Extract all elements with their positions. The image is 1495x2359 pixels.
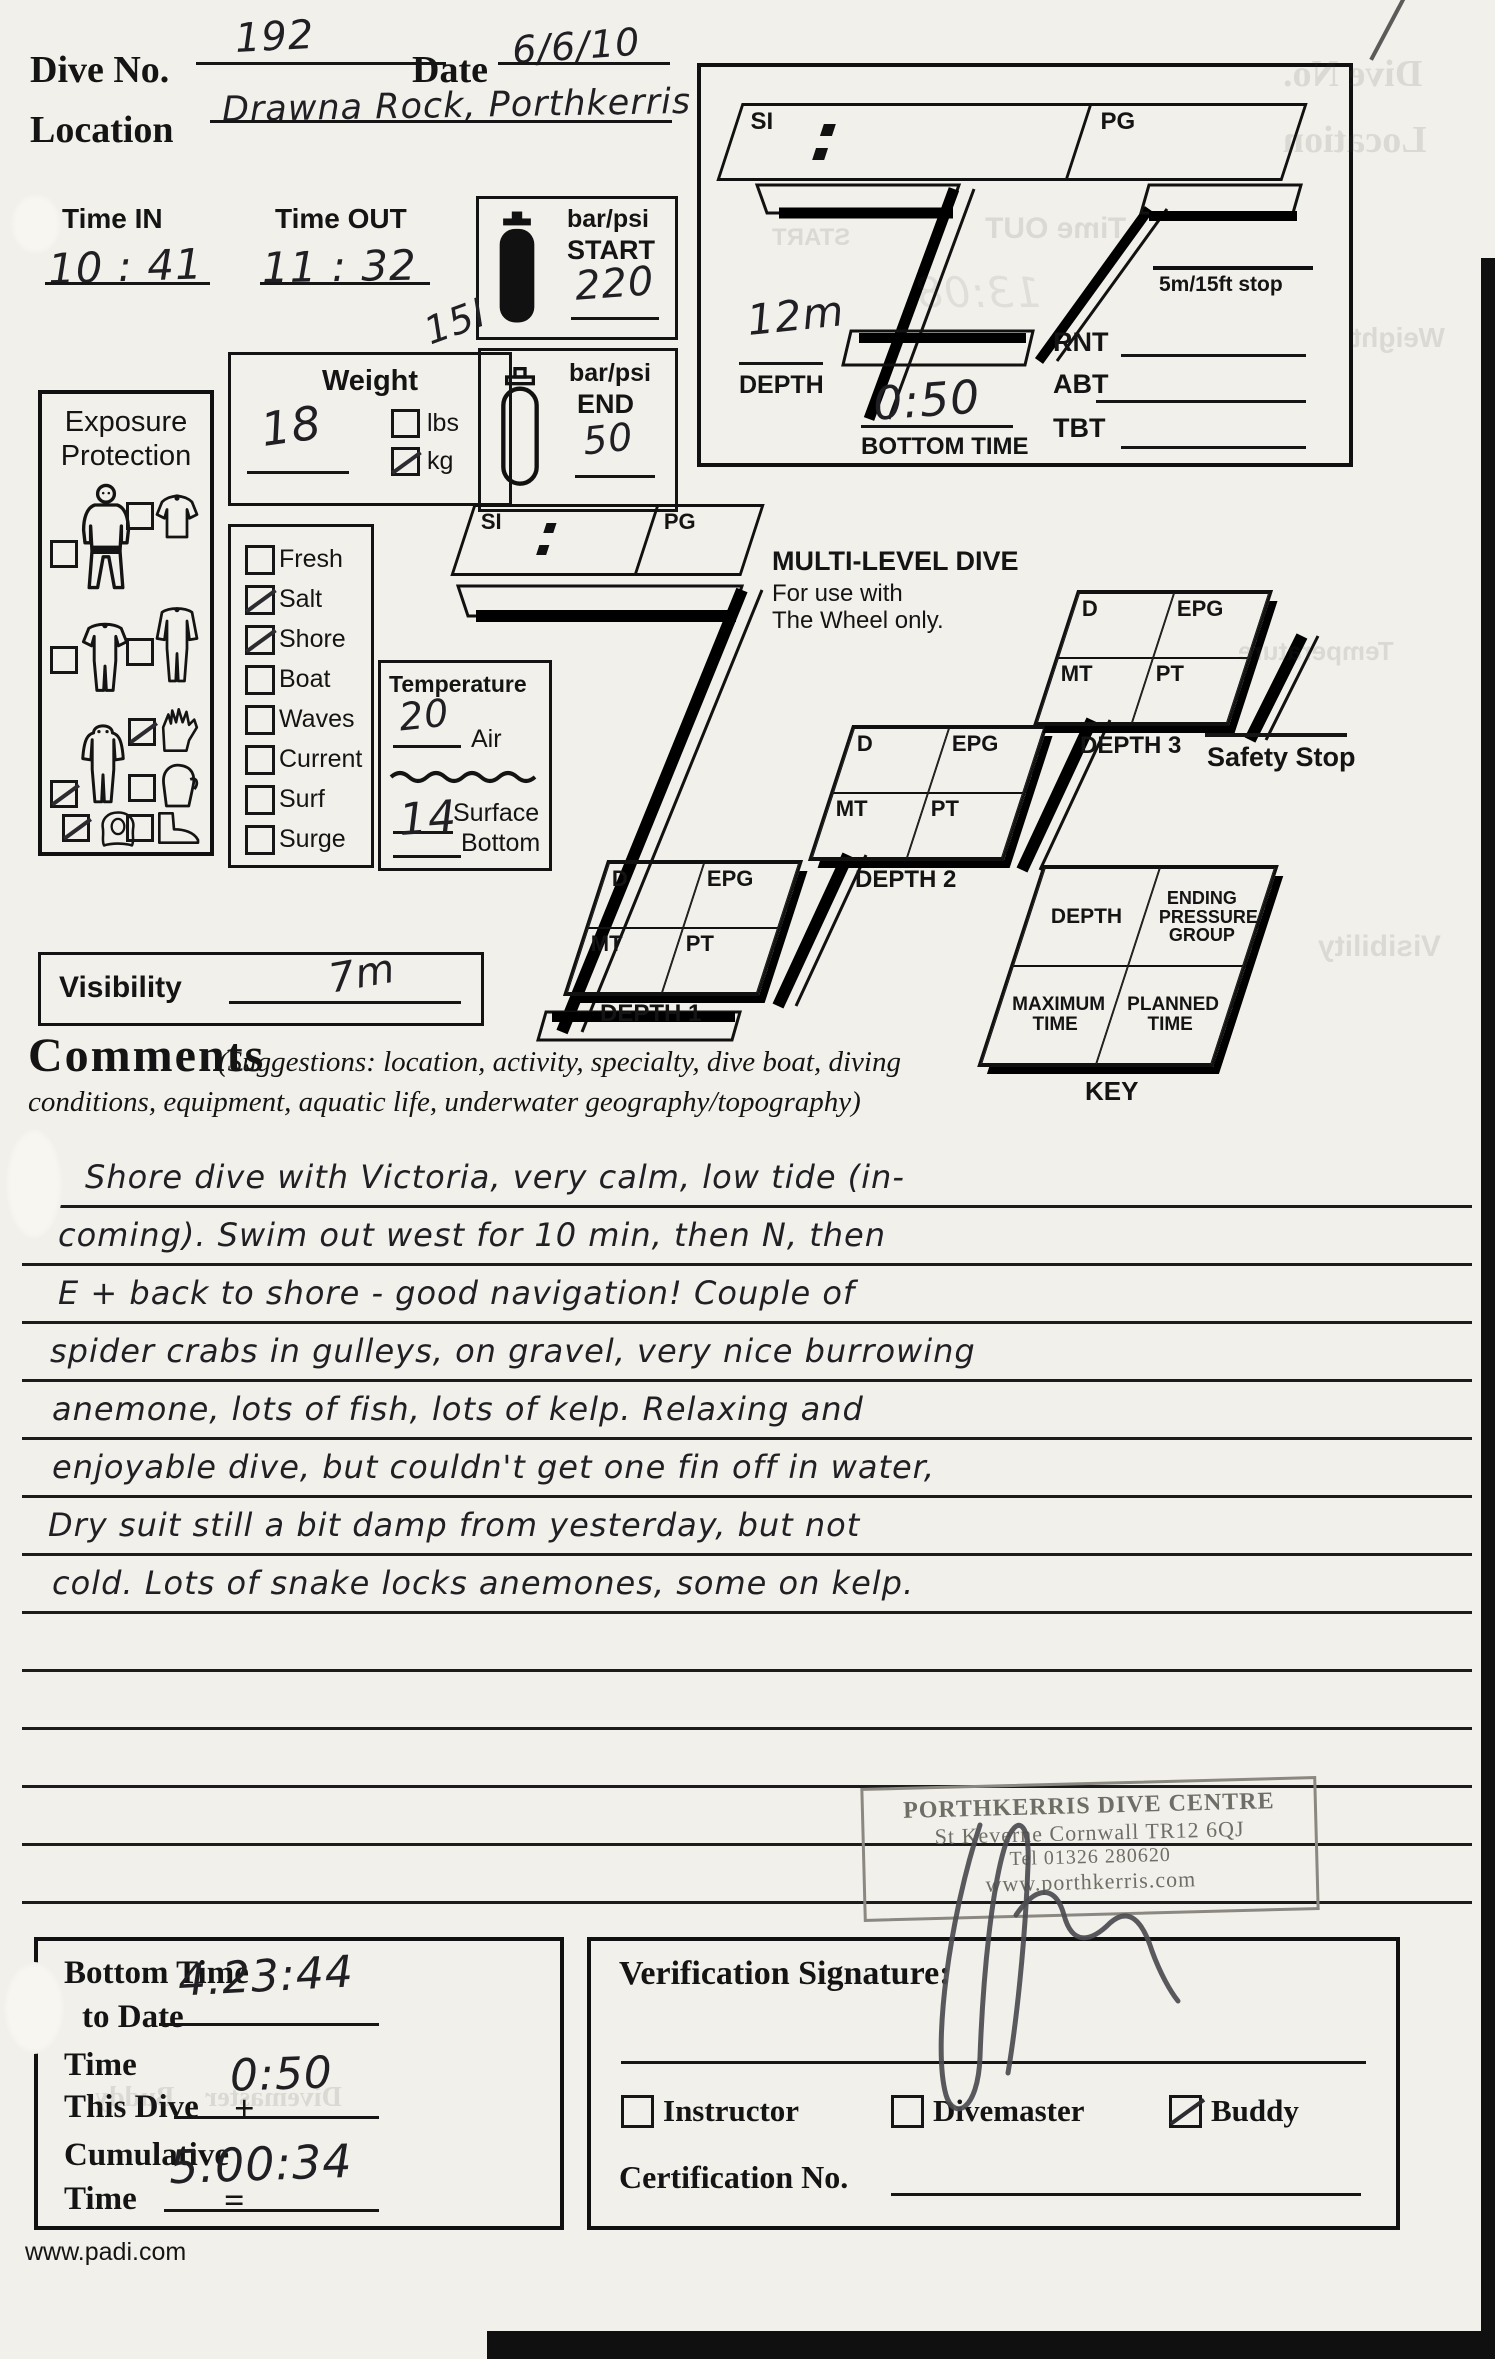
scan-edge-right — [1481, 258, 1495, 2359]
boat-label: Boat — [279, 665, 330, 694]
shore-label: Shore — [279, 625, 346, 654]
ghost-time-value: 13:08 — [915, 268, 1041, 317]
date-line — [498, 62, 670, 65]
comment-line: cold. Lots of snake locks anemones, some… — [52, 1564, 914, 1602]
salt-checkbox — [245, 585, 275, 615]
ghost-divemaster: Divemaster — [205, 2082, 342, 2114]
swimsuit-checkbox — [50, 540, 78, 568]
vest-icon — [152, 482, 202, 552]
dive-log-page: Dive No. 192 Date 6/6/10 Location Drawna… — [0, 0, 1495, 2359]
lbs-checkbox — [391, 409, 420, 438]
weight-line — [247, 471, 349, 474]
comments-suggestions-1: (Suggestions: location, activity, specia… — [218, 1046, 901, 1079]
scan-edge-bottom — [487, 2331, 1495, 2359]
comment-line: Dry suit still a bit damp from yesterday… — [48, 1506, 860, 1544]
depth1-cell-d: D — [612, 866, 628, 892]
safety-stop-label: Safety Stop — [1207, 742, 1356, 773]
fresh-checkbox — [245, 545, 275, 575]
lbs-label: lbs — [427, 409, 459, 438]
rnt-line — [1121, 354, 1306, 357]
surge-label: Surge — [279, 825, 346, 854]
time-this-dive-label-1: Time — [64, 2047, 137, 2084]
time-in-value: 10 : 41 — [47, 239, 203, 293]
bottom-time-line — [861, 425, 1013, 428]
fresh-label: Fresh — [279, 545, 343, 574]
visibility-label: Visibility — [59, 971, 182, 1005]
kg-checkbox — [391, 447, 420, 476]
weight-title: Weight — [231, 365, 509, 398]
abt-line — [1096, 400, 1306, 403]
depth3-cell-d: D — [1082, 596, 1098, 622]
visibility-line — [229, 1001, 461, 1004]
visibility-box: Visibility 7m — [38, 952, 484, 1026]
exposure-title-2: Protection — [42, 440, 210, 473]
abt-label: ABT — [1053, 369, 1109, 400]
ghost-dive-no: Dive No. — [1283, 52, 1422, 96]
instructor-label: Instructor — [663, 2093, 799, 2129]
jumpsuit-icon — [152, 590, 202, 702]
bottom-time-to-date-line — [159, 2023, 379, 2026]
instructor-checkbox — [621, 2095, 654, 2128]
comment-line: E + back to shore - good navigation! Cou… — [58, 1274, 855, 1312]
key-cell-epg: ENDING PRESSURE GROUP — [1158, 889, 1244, 945]
dive-profile-box: SI PG 5m/15ft stop 12m DEPTH 0:50 — [697, 63, 1353, 467]
ghost-start: START — [772, 224, 850, 252]
hole-punch-mark — [10, 193, 62, 255]
surf-checkbox — [245, 785, 275, 815]
cumulative-label-2: Time — [64, 2181, 137, 2218]
surf-label: Surf — [279, 785, 325, 814]
ghost-location: Location — [1283, 118, 1427, 162]
boat-checkbox — [245, 665, 275, 695]
safety-stop-line — [1205, 733, 1347, 737]
weight-value: 18 — [258, 395, 325, 457]
hooded-suit-checkbox — [50, 780, 78, 808]
bottom-time-to-date-label-2: to Date — [82, 1999, 184, 2036]
key-cell-depth: DEPTH — [1051, 905, 1122, 929]
padi-url: www.padi.com — [25, 2238, 186, 2267]
depth3-cell-mt: MT — [1061, 661, 1093, 687]
shorty-suit-icon — [78, 608, 132, 708]
ghost-buddy: Buddy — [95, 2082, 174, 2114]
depth2-cell-epg: EPG — [952, 731, 998, 757]
depth2-cell-pt: PT — [931, 796, 959, 822]
location-line — [210, 120, 672, 123]
rnt-label: RNT — [1053, 327, 1109, 358]
tank-end-value: 50 — [581, 414, 636, 463]
conditions-box: Fresh Salt Shore Boat Waves Current Surf… — [228, 524, 374, 868]
boots-checkbox — [126, 814, 154, 842]
comment-rule — [22, 1495, 1472, 1498]
location-label: Location — [30, 108, 174, 152]
hood-checkbox — [62, 814, 90, 842]
comment-rule — [22, 1553, 1472, 1556]
ghost-visibility: Visibility — [1318, 930, 1441, 964]
dive-no-value: 192 — [234, 12, 316, 62]
comment-rule — [22, 1727, 1472, 1730]
certification-no-line — [891, 2193, 1361, 2196]
weight-box: Weight 18 lbs kg — [228, 352, 512, 506]
bottom-time-value: 0:50 — [871, 369, 982, 430]
time-out-label: Time OUT — [275, 203, 407, 235]
depth1-caption: DEPTH 1 — [600, 1000, 701, 1028]
salt-label: Salt — [279, 585, 322, 614]
depth2-cell-d: D — [857, 731, 873, 757]
tbt-line — [1121, 446, 1306, 449]
comment-rule — [22, 1379, 1472, 1382]
dive-no-label: Dive No. — [30, 48, 169, 92]
comment-line: enjoyable dive, but couldn't get one fin… — [52, 1448, 935, 1486]
tank-units-label: bar/psi — [567, 205, 649, 234]
comment-rule — [22, 1321, 1472, 1324]
waves-label: Waves — [279, 705, 354, 734]
depth-line — [739, 362, 823, 365]
time-out-line — [260, 282, 430, 285]
comment-rule — [22, 1611, 1472, 1614]
comment-rule — [22, 1205, 1472, 1208]
boots-icon — [154, 810, 202, 846]
depth3-cell-pt: PT — [1156, 661, 1184, 687]
depth1-cell-epg: EPG — [707, 866, 753, 892]
hole-punch-mark — [3, 1962, 65, 2054]
hooded-suit-icon — [76, 710, 130, 818]
swimsuit-icon — [78, 476, 134, 604]
key-caption: KEY — [1085, 1076, 1138, 1107]
ml-colon-dot — [543, 523, 556, 533]
tank-filled-icon — [491, 209, 543, 325]
tank-start-value: 220 — [573, 258, 655, 309]
comment-rule — [22, 1263, 1472, 1266]
buddy-label: Buddy — [1211, 2093, 1299, 2129]
comment-line: spider crabs in gulleys, on gravel, very… — [50, 1332, 976, 1370]
cumulative-line — [164, 2209, 379, 2212]
comment-line: Shore dive with Victoria, very calm, low… — [85, 1158, 905, 1196]
time-in-label: Time IN — [62, 203, 163, 235]
safety-stop-depth-label: 5m/15ft stop — [1159, 273, 1283, 297]
depth2-caption: DEPTH 2 — [855, 866, 956, 894]
cumulative-value: 5.00:34 — [168, 2134, 353, 2194]
tbt-label: TBT — [1053, 413, 1105, 444]
tank-units-label-2: bar/psi — [569, 359, 651, 388]
ghost-weight: Weight — [1352, 322, 1445, 354]
exposure-title-1: Exposure — [42, 406, 210, 439]
tank-start-line — [571, 317, 659, 320]
comment-line: coming). Swim out west for 10 min, then … — [58, 1216, 886, 1254]
key-cell-planned: PLANNED TIME — [1127, 995, 1213, 1035]
mitts-icon — [158, 760, 200, 810]
current-label: Current — [279, 745, 362, 774]
comment-rule — [22, 1669, 1472, 1672]
mitts-checkbox — [128, 774, 156, 802]
gloves-icon — [158, 704, 202, 756]
dive-no-line — [196, 62, 446, 65]
ml-si-label: SI — [481, 509, 502, 535]
depth1-cell-mt: MT — [591, 931, 623, 957]
time-in-line — [45, 282, 210, 285]
shore-checkbox — [245, 625, 275, 655]
certification-no-label: Certification No. — [619, 2159, 848, 2196]
comment-rule — [22, 1437, 1472, 1440]
ghost-temperature: Temperature — [1238, 636, 1394, 667]
tank-end-line — [575, 475, 655, 478]
depth2-cell-mt: MT — [836, 796, 868, 822]
kg-label: kg — [427, 447, 453, 476]
depth3-cell-epg: EPG — [1177, 596, 1223, 622]
depth-label: DEPTH — [739, 371, 824, 400]
verification-signature-scribble — [820, 1795, 1200, 2140]
gloves-checkbox — [128, 718, 156, 746]
depth1-cell-pt: PT — [686, 931, 714, 957]
tank-start-box: bar/psi START 220 — [476, 196, 678, 340]
current-checkbox — [245, 745, 275, 775]
waves-checkbox — [245, 705, 275, 735]
exposure-protection-box: Exposure Protection — [38, 390, 214, 856]
surge-checkbox — [245, 825, 275, 855]
key-cell-max: MAXIMUM TIME — [1012, 995, 1098, 1035]
ml-pg-label: PG — [664, 509, 696, 535]
comments-suggestions-2: conditions, equipment, aquatic life, und… — [28, 1086, 861, 1119]
jumpsuit-checkbox — [126, 638, 154, 666]
shorty-suit-checkbox — [50, 646, 78, 674]
time-this-dive-line — [174, 2116, 379, 2119]
depth-value: 12m — [745, 286, 847, 345]
depth3-caption: DEPTH 3 — [1080, 732, 1181, 760]
ml-colon-dot — [536, 545, 549, 555]
bottom-time-to-date-value: 4.23:44 — [177, 1946, 355, 2006]
visibility-value: 7m — [326, 946, 399, 1003]
comment-line: anemone, lots of fish, lots of kelp. Rel… — [52, 1390, 864, 1428]
bottom-time-label: BOTTOM TIME — [861, 433, 1029, 461]
vest-checkbox — [126, 502, 154, 530]
hole-punch-mark — [5, 1128, 63, 1240]
ghost-time-out: Time OUT — [985, 212, 1126, 246]
